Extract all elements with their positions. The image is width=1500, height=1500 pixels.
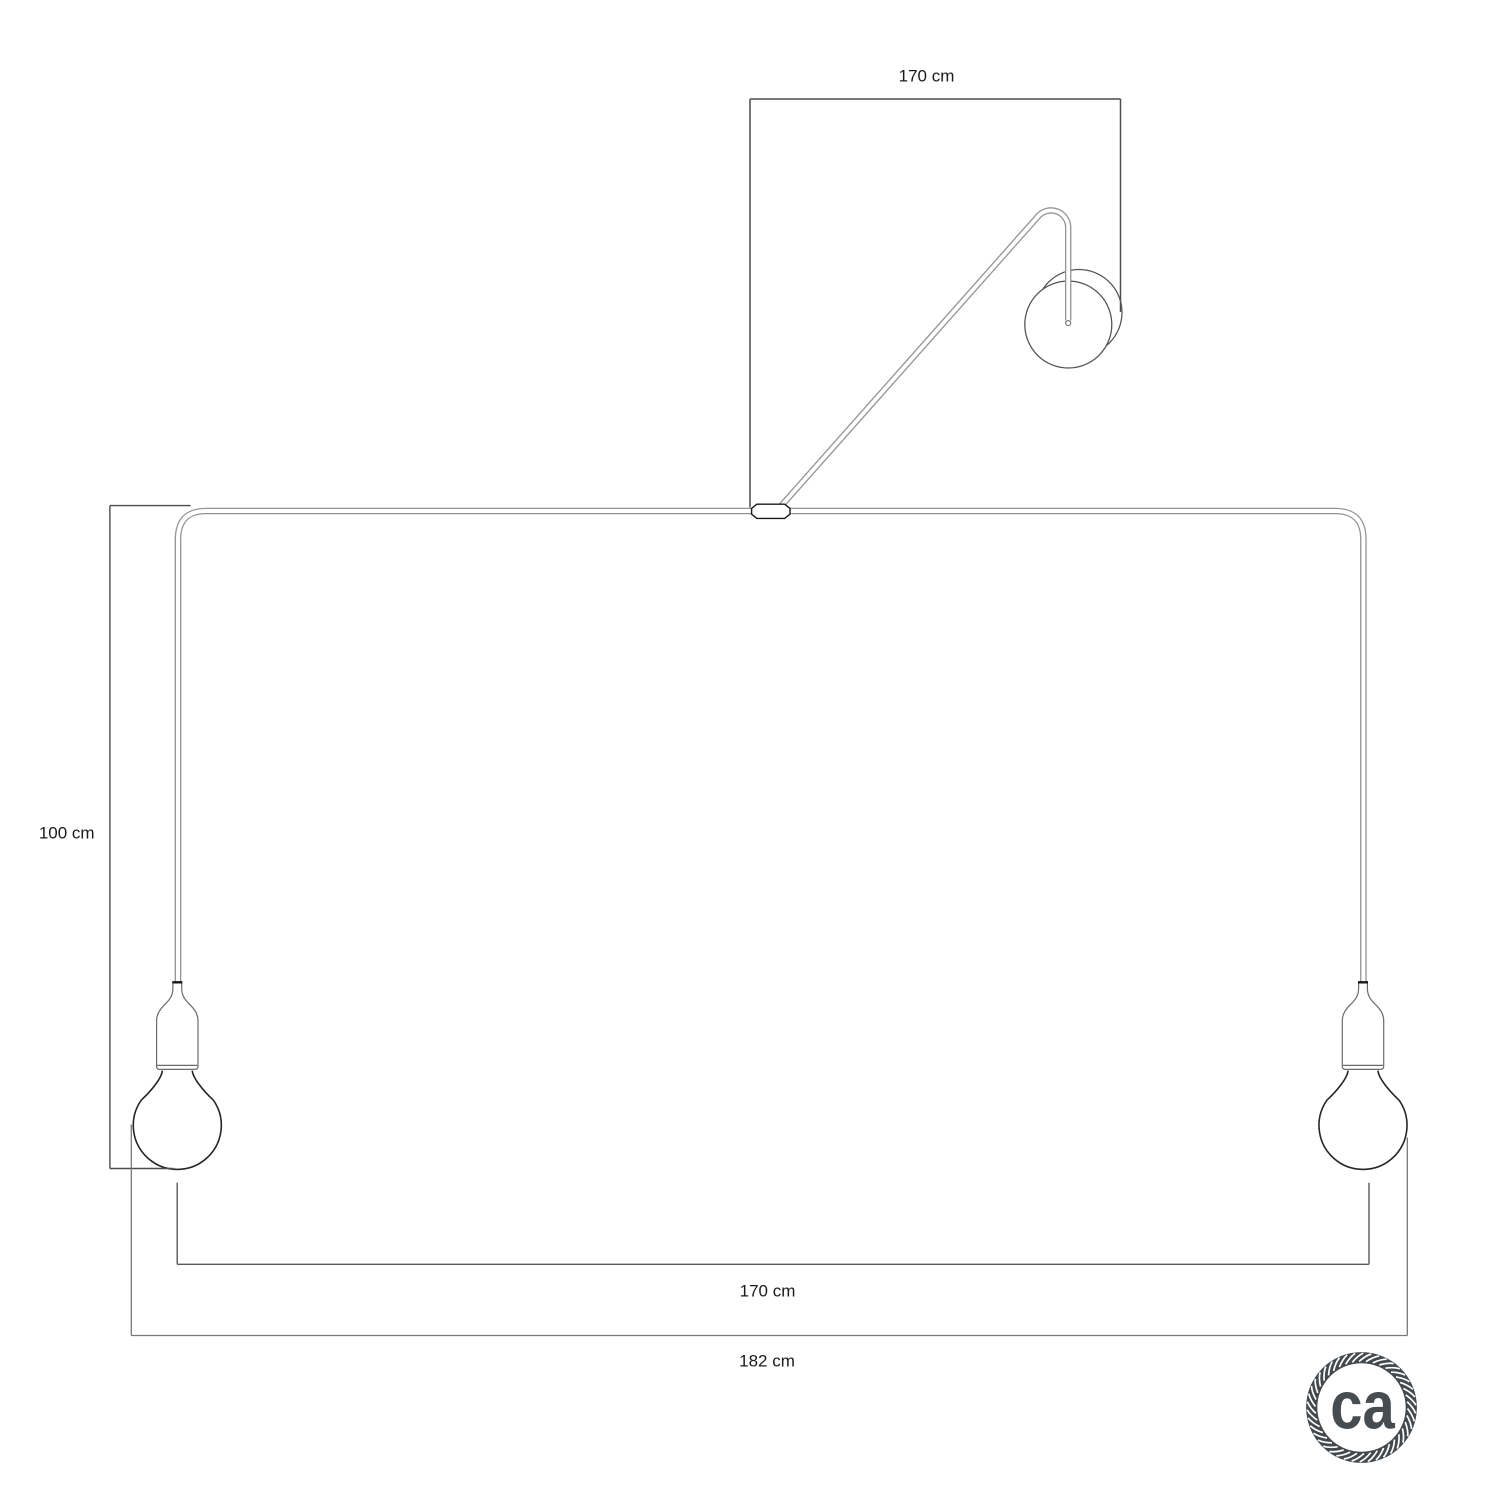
- svg-text:100 cm: 100 cm: [39, 824, 95, 843]
- svg-text:170 cm: 170 cm: [740, 1282, 796, 1301]
- svg-text:182 cm: 182 cm: [739, 1352, 795, 1371]
- svg-text:170 cm: 170 cm: [899, 67, 955, 86]
- svg-text:ca: ca: [1330, 1368, 1396, 1444]
